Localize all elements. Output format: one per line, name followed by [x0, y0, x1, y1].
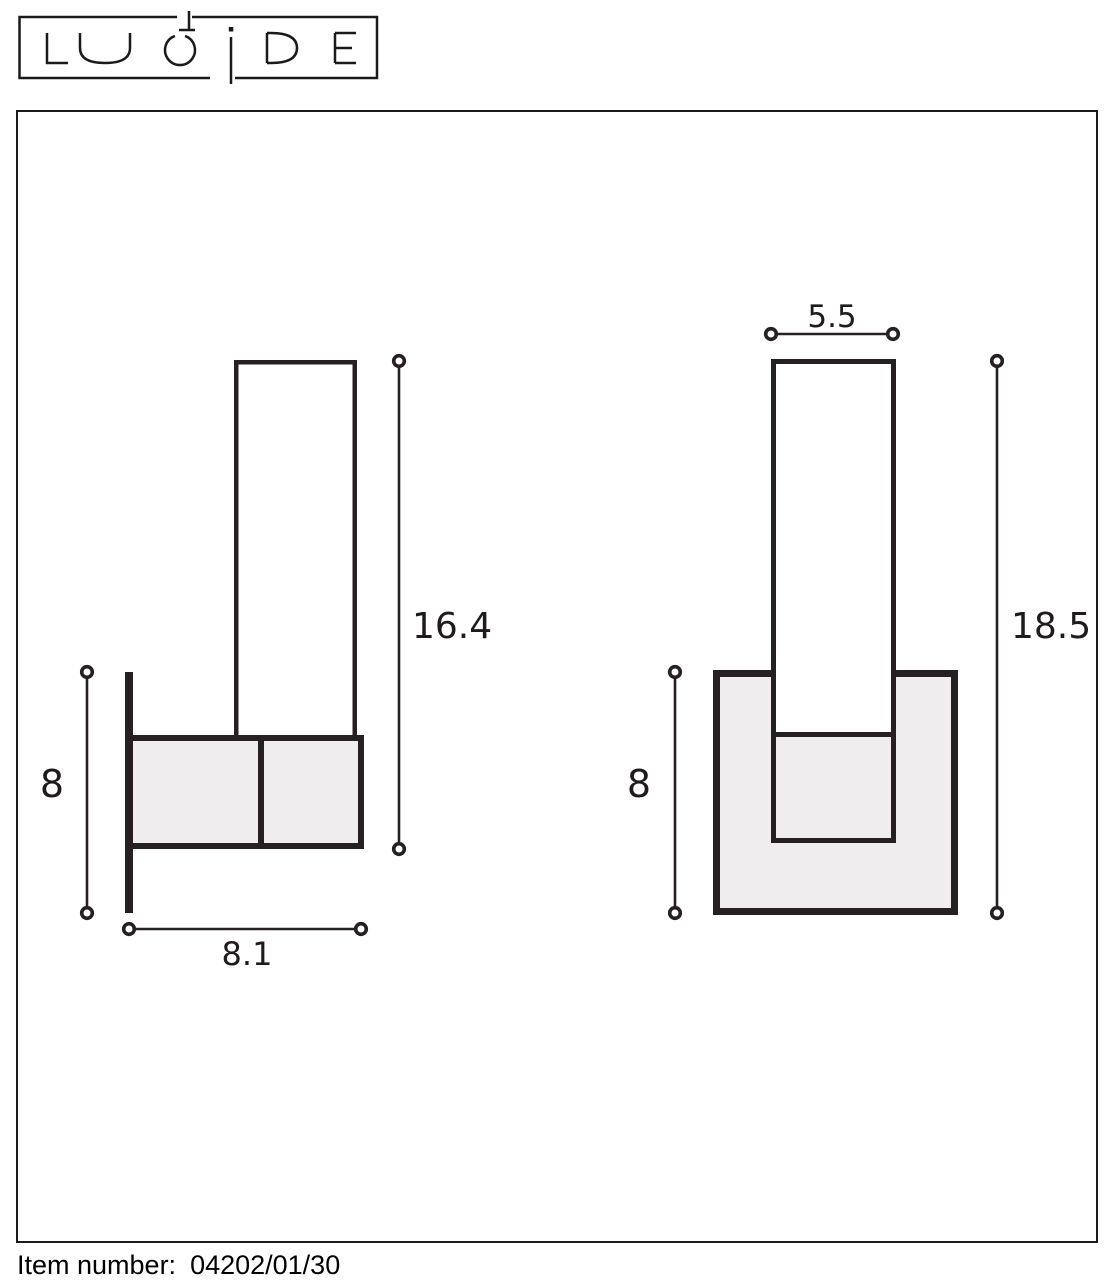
dimension-height-label: 16.4: [412, 606, 492, 647]
dimension-total-height-label: 18.5: [1011, 606, 1091, 647]
dimension-total-height: [992, 356, 1003, 919]
item-number-row: Item number:04202/01/30: [17, 1250, 340, 1280]
dimension-tube-width-label: 5.5: [807, 299, 856, 335]
spec-sheet-page: 8 16.4 8.1 5.5: [0, 0, 1116, 1280]
dimension-endpoint: [766, 329, 777, 340]
logo-letter-l: [47, 33, 68, 63]
tube-outline: [236, 362, 355, 737]
dimension-housing-label: 8: [627, 762, 651, 806]
dimension-endpoint: [82, 908, 93, 919]
dimension-endpoint: [670, 667, 681, 678]
dimension-endpoint: [394, 844, 405, 855]
dimension-endpoint: [888, 329, 899, 340]
logo-letter-u: [80, 33, 130, 63]
logo-letter-d: [267, 33, 297, 63]
dimension-endpoint: [670, 908, 681, 919]
item-number-label: Item number:: [17, 1250, 176, 1280]
side-view-drawing: 8 16.4 8.1: [30, 340, 500, 990]
dimension-endpoint: [992, 908, 1003, 919]
dimension-housing: [670, 667, 681, 919]
dimension-endpoint: [82, 667, 93, 678]
lucide-logo: [18, 6, 380, 100]
logo-cord-icon: [179, 11, 195, 30]
dimension-endpoint: [124, 924, 135, 935]
logo-letter-e: [335, 33, 356, 63]
dimension-endpoint: [394, 356, 405, 367]
front-view-drawing: 5.5 8 18.5: [620, 290, 1100, 930]
item-number-value: 04202/01/30: [190, 1250, 340, 1280]
dimension-width-label: 8.1: [222, 935, 273, 973]
dimension-depth: [82, 667, 93, 919]
tube-outline: [774, 362, 894, 735]
dimension-endpoint: [356, 924, 367, 935]
dimension-depth-label: 8: [40, 762, 64, 806]
housing-box: [130, 738, 361, 846]
dimension-height: [394, 356, 405, 855]
logo-letter-i-dot: [229, 27, 234, 32]
logo-letter-c: [165, 36, 195, 65]
dimension-width: [124, 924, 367, 935]
housing-channel: [774, 735, 894, 841]
dimension-endpoint: [992, 356, 1003, 367]
